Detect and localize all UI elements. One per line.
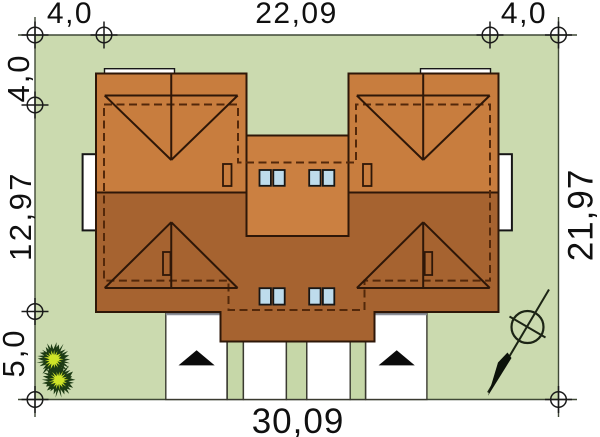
svg-text:30,09: 30,09: [252, 402, 345, 437]
svg-text:4,0: 4,0: [501, 0, 547, 30]
svg-text:21,97: 21,97: [561, 169, 600, 262]
svg-text:5,0: 5,0: [0, 328, 31, 377]
svg-text:22,09: 22,09: [255, 0, 338, 30]
svg-text:4,0: 4,0: [47, 0, 93, 30]
svg-text:12,97: 12,97: [3, 171, 38, 261]
svg-text:4,0: 4,0: [1, 53, 36, 102]
